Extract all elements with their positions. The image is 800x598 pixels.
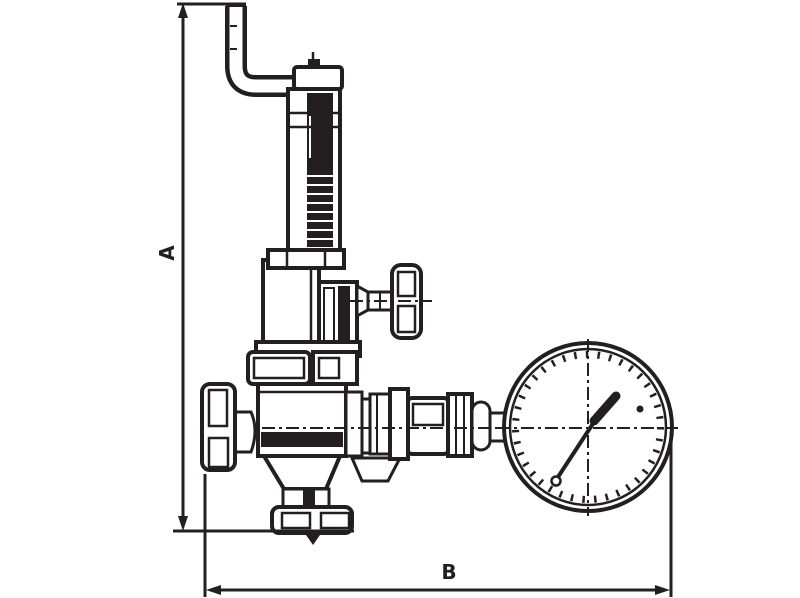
spring-housing [256, 250, 360, 356]
cap-nipple [308, 59, 320, 68]
test-handle [350, 265, 432, 338]
dimension-b-label: B [441, 560, 456, 584]
gauge-nut [448, 394, 472, 456]
body-seat-band [261, 432, 343, 447]
technical-drawing-page: A B [0, 0, 800, 598]
side-column-spindle [338, 286, 350, 348]
adjuster-nut [268, 250, 344, 268]
arrowhead-right-icon [655, 585, 670, 595]
dial-dot-icon [637, 406, 644, 413]
needle-counterweight [552, 477, 561, 486]
spindle-cap [294, 67, 342, 89]
outlet-taper [264, 456, 340, 489]
inlet-handle [202, 384, 255, 470]
outlet-stem [303, 489, 315, 507]
flow-arrow-icon [306, 535, 320, 545]
arrowhead-down-icon [178, 516, 188, 531]
inlet-neck [235, 412, 255, 452]
valve-spindle [288, 52, 342, 253]
fitting-skirt [352, 458, 400, 481]
pressure-gauge [497, 339, 680, 516]
fitting-segment [346, 392, 362, 456]
arrowhead-left-icon [206, 585, 221, 595]
valve-body [258, 384, 346, 456]
valve-with-gauge-diagram: A B [0, 0, 800, 598]
curved-adapter [472, 402, 490, 450]
dimension-a-label: A [155, 245, 179, 261]
upper-flanges [248, 352, 357, 384]
fitting-segment [370, 394, 390, 454]
coupling-nut [390, 389, 408, 459]
